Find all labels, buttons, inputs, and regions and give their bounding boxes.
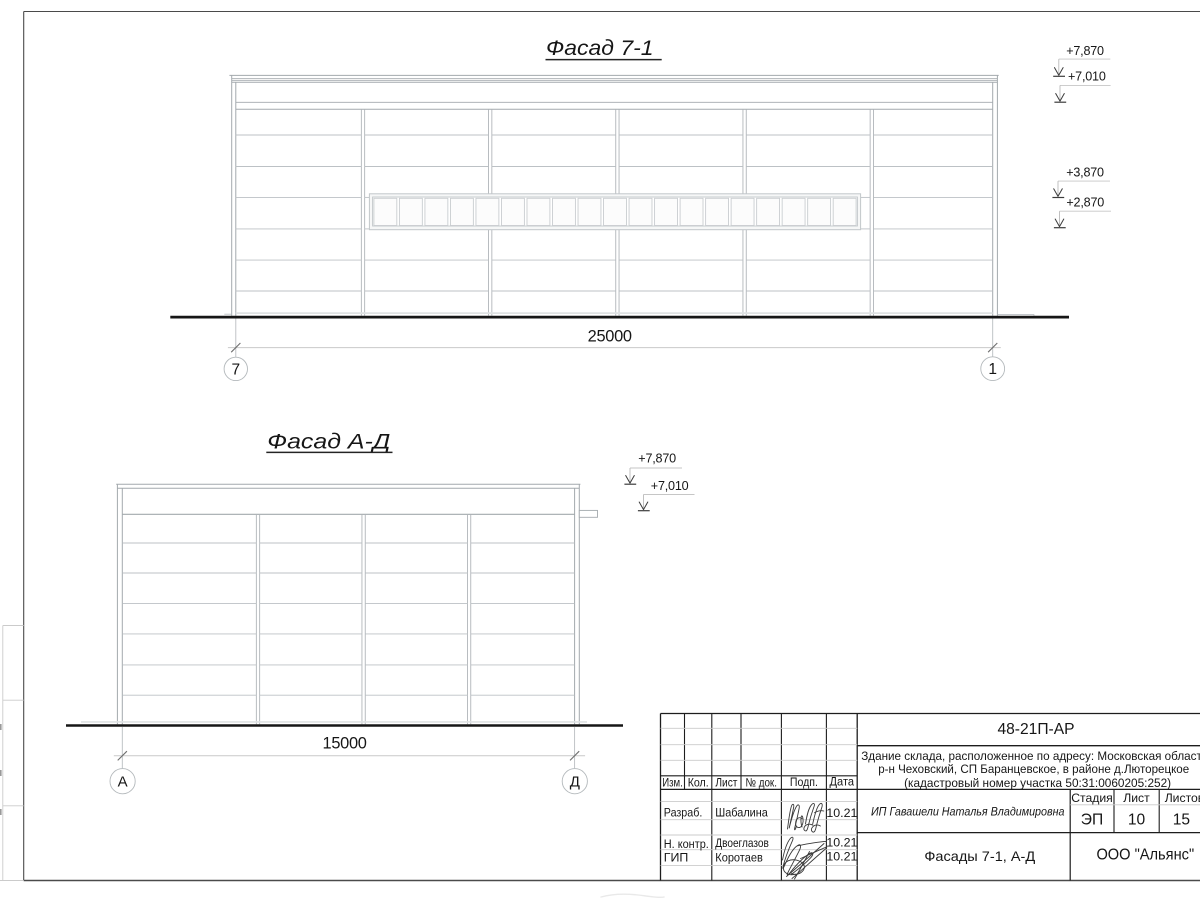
svg-text:Фасад 7-1: Фасад 7-1 — [546, 37, 654, 60]
svg-text:+7,010: +7,010 — [1068, 69, 1106, 83]
svg-text:Подп.: Подп. — [790, 775, 818, 789]
svg-text:Коротаев: Коротаев — [715, 851, 763, 865]
svg-text:Разраб.: Разраб. — [664, 806, 703, 820]
svg-text:Лист: Лист — [1123, 791, 1150, 805]
svg-text:10.21: 10.21 — [826, 806, 857, 820]
svg-text:Здание склада, расположенное п: Здание склада, расположенное по адресу: … — [861, 749, 1200, 763]
svg-text:ГИП: ГИП — [664, 850, 689, 864]
svg-text:10.21: 10.21 — [826, 835, 857, 849]
svg-text:+7,870: +7,870 — [638, 451, 676, 465]
svg-text:Листов: Листов — [1165, 791, 1200, 805]
svg-text:Дата: Дата — [830, 775, 855, 789]
svg-text:7: 7 — [231, 361, 240, 378]
svg-text:А: А — [118, 773, 128, 790]
svg-text:Стадия: Стадия — [1071, 791, 1113, 805]
svg-text:+2,870: +2,870 — [1066, 195, 1104, 209]
svg-text:Фасад А-Д: Фасад А-Д — [267, 430, 390, 454]
svg-text:Фасады 7-1, А-Д: Фасады 7-1, А-Д — [924, 849, 1035, 864]
svg-text:Шабалина: Шабалина — [715, 806, 768, 820]
svg-text:1: 1 — [988, 361, 997, 378]
svg-text:48-21П-АР: 48-21П-АР — [997, 721, 1074, 738]
svg-text:№ док.: № док. — [745, 775, 777, 789]
svg-text:Д: Д — [570, 773, 580, 790]
svg-text:Лист: Лист — [715, 775, 737, 789]
svg-text:р-н Чеховский, СП Баранцевское: р-н Чеховский, СП Баранцевское, в районе… — [878, 762, 1189, 776]
svg-text:ИП Гавашели Наталья Владимиров: ИП Гавашели Наталья Владимировна — [871, 805, 1065, 819]
svg-text:Н. контр.: Н. контр. — [664, 837, 709, 851]
svg-text:+7,870: +7,870 — [1066, 44, 1104, 58]
svg-text:25000: 25000 — [588, 327, 632, 345]
svg-text:+3,870: +3,870 — [1066, 166, 1104, 180]
svg-text:Двоеглазов: Двоеглазов — [715, 836, 769, 850]
svg-text:10.21: 10.21 — [826, 849, 857, 863]
svg-text:Изм.: Изм. — [662, 775, 683, 789]
svg-text:(кадастровый номер участка 50:: (кадастровый номер участка 50:31:0060205… — [904, 776, 1171, 790]
svg-text:10: 10 — [1128, 812, 1146, 829]
svg-text:Кол.: Кол. — [688, 775, 709, 789]
svg-text:ЭП: ЭП — [1081, 812, 1103, 829]
svg-text:15: 15 — [1173, 812, 1191, 829]
svg-text:ООО "Альянс": ООО "Альянс" — [1096, 847, 1194, 864]
svg-text:15000: 15000 — [323, 735, 367, 753]
svg-text:+7,010: +7,010 — [651, 479, 689, 493]
